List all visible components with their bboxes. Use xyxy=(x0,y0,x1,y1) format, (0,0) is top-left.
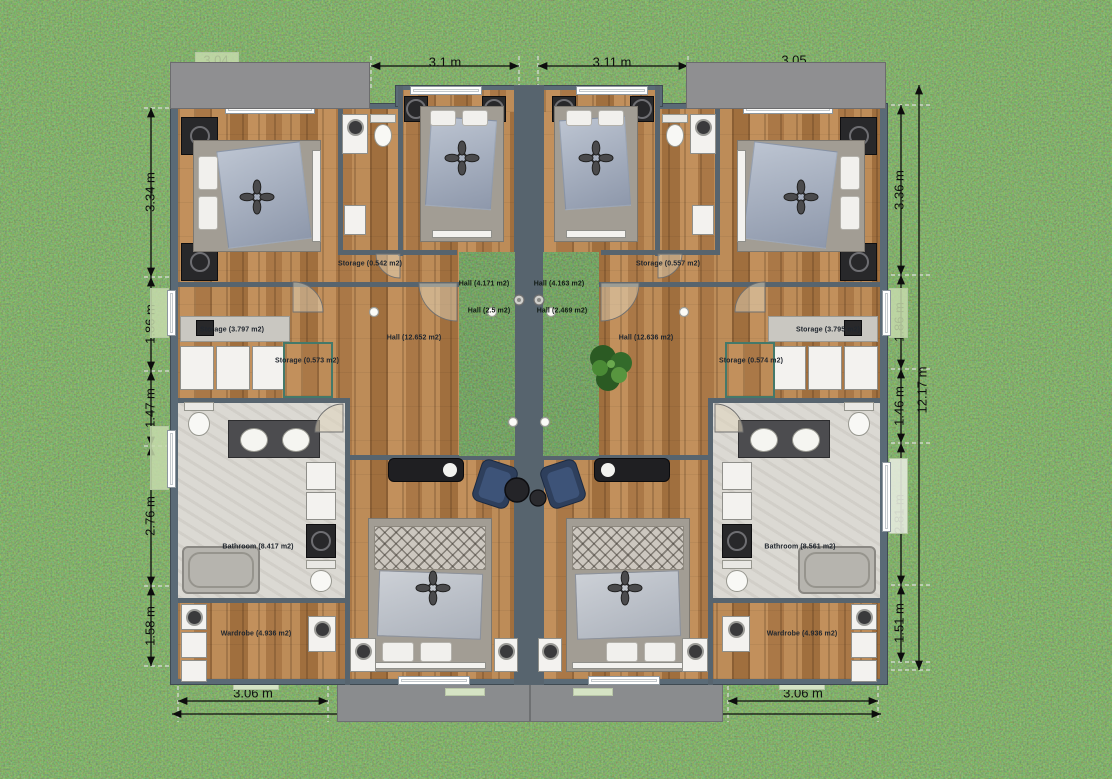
room-label-closet-left[interactable]: Storage (0.573 m2) xyxy=(275,358,339,365)
ceiling-fan-icon[interactable] xyxy=(608,571,642,605)
plan-overlay xyxy=(0,0,1112,779)
room-label-courtyard-left-bottom[interactable]: Hall (2.5 m2) xyxy=(468,308,511,315)
room-label-hall-right[interactable]: Hall (12.636 m2) xyxy=(619,335,674,342)
room-label-bathroom-right[interactable]: Bathroom (8.561 m2) xyxy=(764,544,835,551)
room-label-hall-left[interactable]: Hall (12.652 m2) xyxy=(387,335,442,342)
side-table[interactable] xyxy=(505,478,546,506)
ceiling-fan-icon[interactable] xyxy=(416,571,450,605)
room-label-storage-small-right[interactable]: Storage (0.557 m2) xyxy=(636,261,700,268)
room-label-bathroom-left[interactable]: Bathroom (8.417 m2) xyxy=(222,544,293,551)
room-label-wardrobe-left[interactable]: Wardrobe (4.936 m2) xyxy=(221,631,292,638)
wall-lamp-icons xyxy=(514,295,544,305)
room-label-courtyard-left-top[interactable]: Hall (4.171 m2) xyxy=(459,281,510,288)
ceiling-fan-icon[interactable] xyxy=(240,180,274,214)
ceiling-fan-icon[interactable] xyxy=(579,141,613,175)
ceiling-fan-icon[interactable] xyxy=(445,141,479,175)
room-label-storage-left[interactable]: Storage (3.797 m2) xyxy=(200,327,264,334)
room-label-storage-right[interactable]: Storage (3.795 m2) xyxy=(796,327,860,334)
room-label-courtyard-right-bottom[interactable]: Hall (2.469 m2) xyxy=(537,308,588,315)
floor-plan-canvas[interactable]: 3.04 3.1 m 3.11 m 3.05 3.34 m 1.86 m 1.4… xyxy=(0,0,1112,779)
room-label-wardrobe-right[interactable]: Wardrobe (4.936 m2) xyxy=(767,631,838,638)
room-label-storage-small-left[interactable]: Storage (0.542 m2) xyxy=(338,261,402,268)
ceiling-light-icons xyxy=(370,308,689,427)
ceiling-fan-icon[interactable] xyxy=(784,180,818,214)
door-swings xyxy=(293,254,765,432)
room-label-courtyard-right-top[interactable]: Hall (4.163 m2) xyxy=(534,281,585,288)
room-label-closet-right[interactable]: Storage (0.574 m2) xyxy=(719,358,783,365)
